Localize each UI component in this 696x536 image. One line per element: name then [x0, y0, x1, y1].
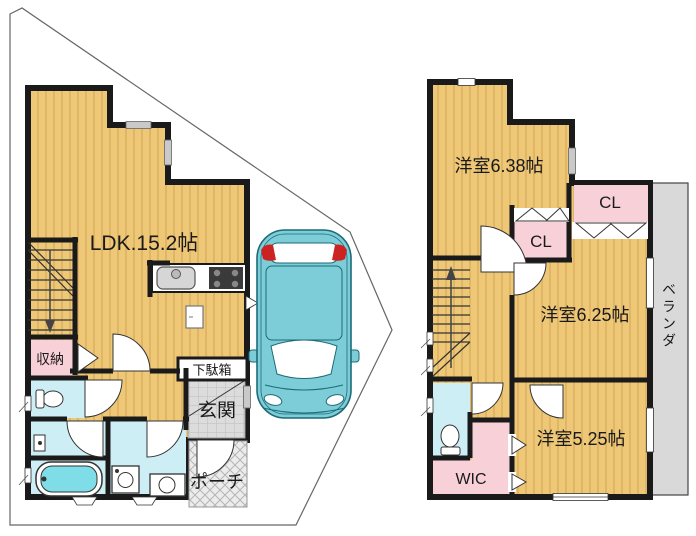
- closet-a-label: CL: [599, 193, 621, 213]
- ldk-label: LDK.15.2帖: [90, 227, 199, 257]
- washbasin-icon: [150, 474, 185, 496]
- floorplan-drawing: [0, 0, 696, 536]
- wic-label: WIC: [455, 471, 486, 489]
- toilet-icon-1f: [36, 390, 63, 408]
- sink-icon: [157, 267, 195, 289]
- folding-door-closet-a: [572, 222, 648, 239]
- folding-door-closet-b: [514, 208, 569, 222]
- room638-label: 洋室6.38帖: [454, 152, 543, 178]
- closet-b-label: CL: [530, 232, 552, 252]
- floorplan-canvas: LDK.15.2帖 収納 下駄箱 玄関 ポーチ 洋室6.38帖 CL CL 洋室…: [0, 0, 696, 536]
- porch-label: ポーチ: [190, 468, 244, 494]
- toilet-icon-2f: [441, 425, 460, 455]
- storage-label: 収納: [36, 349, 64, 369]
- entrance-label: 玄関: [198, 396, 236, 423]
- floor1-plan: [19, 88, 258, 507]
- shoe-box-label: 下駄箱: [192, 360, 231, 379]
- washing-machine-icon: [112, 466, 139, 493]
- counter-square: [186, 306, 203, 328]
- washbasin-small-icon: [34, 435, 45, 451]
- veranda-label: ベランダ: [659, 282, 679, 350]
- bathtub-icon: [36, 462, 102, 496]
- car-icon: [249, 230, 359, 418]
- room525-label: 洋室5.25帖: [536, 425, 625, 451]
- stove-icon: [209, 267, 243, 289]
- room625-label: 洋室6.25帖: [540, 301, 629, 327]
